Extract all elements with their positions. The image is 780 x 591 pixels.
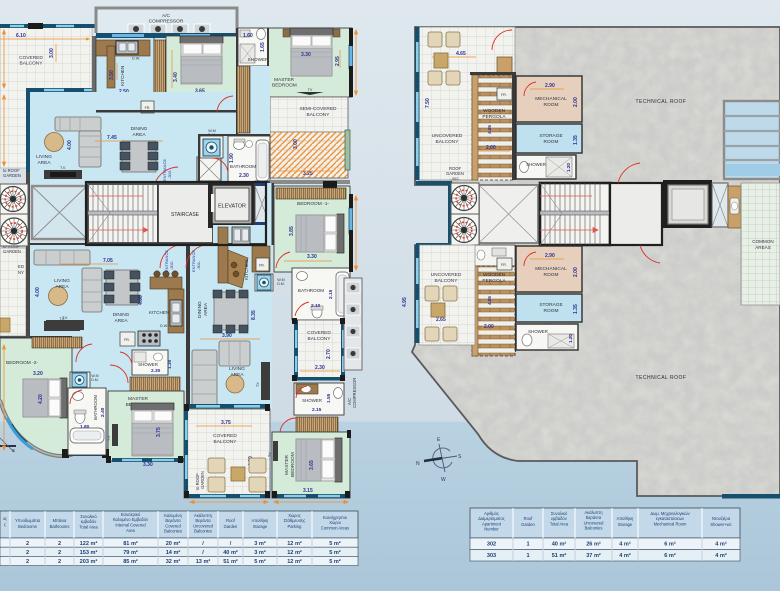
svg-text:TX: TX [256, 382, 260, 387]
svg-text:KITCHEN: KITCHEN [244, 260, 249, 280]
svg-text:1.30: 1.30 [167, 359, 173, 369]
svg-text:5 m²: 5 m² [329, 558, 341, 565]
svg-text:3.15: 3.15 [303, 488, 313, 494]
svg-text:37 m²: 37 m² [586, 552, 601, 559]
svg-text:AREA: AREA [132, 132, 146, 138]
svg-text:COMPRESSOR: COMPRESSOR [352, 378, 357, 408]
svg-text:4 m²: 4 m² [619, 552, 631, 559]
svg-text:S: S [12, 448, 15, 453]
svg-text:12 m²: 12 m² [287, 540, 302, 547]
svg-text:SHOWER: SHOWER [528, 329, 548, 334]
svg-text:1.20: 1.20 [566, 163, 571, 172]
svg-text:3.30: 3.30 [307, 254, 317, 260]
svg-text:εγκαταστάσεων: εγκαταστάσεων [656, 516, 684, 521]
svg-text:AREA: AREA [37, 160, 51, 166]
svg-text:-301-: -301- [196, 260, 201, 270]
svg-text:2: 2 [58, 559, 61, 565]
svg-text:BEDROOM: BEDROOM [290, 452, 296, 477]
svg-text:2.40: 2.40 [100, 407, 106, 417]
svg-text:BEDROOM: BEDROOM [272, 83, 297, 89]
svg-text:AREA: AREA [55, 284, 69, 290]
svg-text:2: 2 [58, 550, 61, 556]
svg-text:3.00: 3.00 [49, 48, 55, 58]
svg-text:AREAS: AREAS [755, 245, 771, 250]
svg-text:4 m²: 4 m² [715, 552, 727, 559]
svg-text:T.V.: T.V. [59, 317, 65, 321]
svg-text:3.20: 3.20 [33, 371, 43, 377]
svg-text:2.15: 2.15 [328, 289, 334, 299]
svg-text:Bathrooms: Bathrooms [50, 524, 70, 529]
svg-text:Ντουζιέρα: Ντουζιέρα [712, 516, 731, 521]
svg-text:SHOWER: SHOWER [302, 398, 322, 403]
svg-text:302: 302 [487, 542, 496, 548]
svg-text:2.30: 2.30 [315, 365, 325, 371]
svg-text:303: 303 [487, 553, 496, 559]
svg-text:Total Area: Total Area [79, 525, 98, 530]
svg-text:Area: Area [126, 528, 135, 533]
svg-text:2: 2 [26, 559, 29, 565]
svg-text:Roof: Roof [524, 516, 534, 521]
svg-text:Garden: Garden [521, 522, 535, 527]
svg-text:2.00: 2.00 [573, 267, 579, 277]
svg-text:3.75: 3.75 [221, 420, 231, 426]
svg-text:Balconies: Balconies [585, 526, 603, 531]
svg-text:14 m²: 14 m² [166, 549, 181, 556]
svg-text:2.15: 2.15 [312, 407, 322, 413]
svg-text:1: 1 [526, 542, 529, 548]
svg-text:1.55: 1.55 [326, 393, 332, 403]
svg-text:4.05: 4.05 [487, 125, 492, 134]
svg-text:SHOWER: SHOWER [526, 162, 546, 167]
svg-text:BEDROOM -1-: BEDROOM -1- [297, 201, 329, 207]
svg-text:Balconies: Balconies [164, 529, 182, 534]
svg-text:PERGOLA: PERGOLA [482, 114, 506, 120]
svg-text:ED: ED [18, 264, 24, 269]
svg-text:2.30: 2.30 [151, 368, 161, 374]
svg-text:2: 2 [26, 550, 29, 556]
svg-text:1.65: 1.65 [260, 42, 266, 52]
svg-text:Mechanical Room: Mechanical Room [654, 522, 687, 527]
svg-text:1.35: 1.35 [573, 135, 579, 145]
svg-text:Shower+wc: Shower+wc [710, 522, 731, 527]
svg-text:BEDROOM -2-: BEDROOM -2- [6, 360, 38, 366]
svg-text:1.20: 1.20 [568, 334, 573, 343]
svg-text:2.00: 2.00 [486, 145, 496, 151]
svg-text:KITCHEN: KITCHEN [149, 310, 169, 315]
svg-text:SHOWER: SHOWER [138, 362, 158, 367]
svg-text:153 m²: 153 m² [80, 549, 98, 556]
svg-text:W: W [441, 477, 446, 483]
svg-text:1.90: 1.90 [229, 153, 235, 163]
svg-text:T.V.: T.V. [60, 166, 66, 170]
svg-text:Internal Covered: Internal Covered [115, 523, 146, 528]
svg-text:4 m²: 4 m² [715, 541, 727, 548]
svg-text:Αποθήκη: Αποθήκη [617, 516, 634, 521]
svg-text:4.00: 4.00 [67, 140, 73, 150]
svg-text:STORAGE: STORAGE [539, 302, 562, 308]
svg-text:26 m²: 26 m² [586, 541, 601, 548]
svg-text:TV: TV [308, 88, 313, 92]
svg-text:3.50: 3.50 [109, 70, 115, 80]
svg-text:ος: ος [3, 516, 7, 521]
svg-text:KITCHEN: KITCHEN [120, 66, 125, 86]
svg-text:εμβαδόν: εμβαδόν [551, 516, 567, 521]
svg-text:STAIRCASE: STAIRCASE [171, 212, 200, 218]
svg-text:3.90: 3.90 [222, 333, 232, 339]
svg-text:NY: NY [18, 270, 24, 275]
svg-text:-302-: -302- [169, 260, 174, 270]
svg-text:DINING: DINING [197, 301, 203, 318]
svg-text:MASTER: MASTER [274, 77, 295, 83]
svg-text:2.10: 2.10 [311, 303, 321, 309]
svg-text:1.60: 1.60 [243, 33, 253, 39]
svg-text:Common Areas: Common Areas [321, 526, 349, 531]
svg-text:40 m²: 40 m² [223, 549, 238, 556]
svg-text:3.75: 3.75 [156, 427, 162, 437]
svg-text:Roof: Roof [226, 518, 236, 523]
svg-text:2.30: 2.30 [239, 173, 249, 179]
svg-text:ROOM: ROOM [544, 272, 559, 278]
svg-text:32 m²: 32 m² [166, 558, 181, 565]
svg-text:40 m²: 40 m² [552, 541, 567, 548]
svg-text:COVERED: COVERED [307, 330, 331, 336]
svg-text:PERGOLA: PERGOLA [482, 278, 506, 284]
svg-text:3.25: 3.25 [303, 171, 313, 177]
svg-text:3.30: 3.30 [143, 462, 153, 468]
svg-text:3.30: 3.30 [301, 52, 311, 58]
svg-text:SEMI-COVERED: SEMI-COVERED [299, 106, 337, 112]
svg-text:MECHANICAL: MECHANICAL [535, 96, 567, 102]
svg-text:1: 1 [526, 553, 529, 559]
svg-text:FR.: FR. [124, 338, 130, 342]
svg-text:TECHNICAL ROOF: TECHNICAL ROOF [636, 99, 687, 105]
svg-text:Parking: Parking [288, 524, 303, 529]
svg-text:Μπάνια: Μπάνια [53, 518, 67, 523]
svg-text:4.05: 4.05 [487, 296, 492, 305]
svg-text:Storage: Storage [253, 524, 268, 529]
svg-text:AREA: AREA [230, 372, 244, 378]
svg-text:4.65: 4.65 [456, 51, 466, 57]
svg-text:GARDEN: GARDEN [3, 173, 21, 178]
svg-text:4.20: 4.20 [38, 394, 44, 404]
svg-text:BATHROOM: BATHROOM [298, 288, 324, 293]
svg-text:FR.: FR. [259, 264, 265, 268]
svg-text:MASTER: MASTER [128, 396, 149, 402]
svg-text:Garden: Garden [224, 524, 238, 529]
svg-text:ROOM: ROOM [544, 308, 559, 314]
svg-text:3 m²: 3 m² [254, 540, 266, 547]
svg-text:FR.: FR. [501, 93, 507, 97]
svg-text:Βεράντα: Βεράντα [195, 518, 211, 523]
svg-text:BALCONY: BALCONY [435, 278, 459, 284]
svg-text:5 m²: 5 m² [329, 549, 341, 556]
svg-text:UNCOVERED: UNCOVERED [432, 133, 463, 139]
svg-text:STORAGE: STORAGE [539, 133, 562, 139]
svg-text:MASTER: MASTER [284, 454, 290, 475]
svg-text:COMMON: COMMON [752, 239, 773, 244]
svg-text:51 m²: 51 m² [552, 552, 567, 559]
svg-text:-302-: -302- [450, 176, 460, 181]
svg-text:203 m²: 203 m² [80, 558, 98, 565]
svg-text:4.00: 4.00 [35, 287, 41, 297]
svg-text:81 m²: 81 m² [123, 540, 138, 547]
svg-text:Total Area: Total Area [550, 522, 569, 527]
svg-text:GARDEN: GARDEN [3, 249, 21, 254]
svg-text:LIVING: LIVING [36, 154, 52, 160]
svg-text:ROOM: ROOM [544, 139, 559, 145]
svg-text:-303-: -303- [167, 169, 172, 179]
svg-text:DINING: DINING [131, 126, 148, 132]
svg-text:DINING: DINING [113, 312, 130, 318]
svg-text:ς: ς [4, 522, 6, 527]
svg-text:UNCOVERED: UNCOVERED [431, 272, 462, 278]
svg-text:6 m²: 6 m² [664, 541, 676, 548]
svg-text:2: 2 [58, 541, 61, 547]
svg-text:D.M.: D.M. [91, 378, 99, 382]
svg-text:3.40: 3.40 [173, 72, 179, 82]
svg-text:4.95: 4.95 [402, 297, 408, 307]
svg-text:51 m²: 51 m² [223, 558, 238, 565]
svg-text:8.35: 8.35 [251, 310, 257, 320]
svg-text:AREA: AREA [203, 302, 209, 316]
svg-text:LIVING: LIVING [54, 278, 70, 284]
svg-text:N: N [416, 461, 420, 467]
svg-text:SHOWER: SHOWER [248, 57, 269, 62]
svg-text:4 m²: 4 m² [619, 541, 631, 548]
svg-text:2.90: 2.90 [545, 253, 555, 259]
svg-text:Βεράντα: Βεράντα [586, 515, 602, 520]
svg-text:4.60: 4.60 [138, 295, 144, 305]
svg-text:FR.: FR. [145, 106, 151, 110]
svg-text:Στάθμευσης: Στάθμευσης [284, 518, 306, 523]
svg-text:Διαμερίσματος: Διαμερίσματος [478, 516, 505, 521]
svg-text:1.80: 1.80 [80, 424, 90, 430]
svg-text:85 m²: 85 m² [123, 558, 138, 565]
svg-text:122 m²: 122 m² [80, 540, 98, 547]
svg-text:6 m²: 6 m² [664, 552, 676, 559]
svg-text:A/C: A/C [162, 13, 171, 19]
svg-text:T.V.: T.V. [107, 435, 111, 441]
svg-text:Βεράντα: Βεράντα [165, 518, 181, 523]
svg-text:ELEVATOR: ELEVATOR [218, 204, 246, 210]
svg-text:Storage: Storage [618, 522, 633, 527]
svg-text:ROOM: ROOM [544, 102, 559, 108]
svg-text:S: S [458, 454, 462, 460]
svg-text:2.70: 2.70 [326, 349, 332, 359]
svg-text:BALCONY: BALCONY [20, 61, 44, 67]
svg-text:TV: TV [268, 452, 272, 457]
svg-text:7.50: 7.50 [425, 98, 431, 108]
svg-text:5 m²: 5 m² [329, 540, 341, 547]
svg-text:D.W.: D.W. [132, 57, 140, 61]
svg-text:2.90: 2.90 [545, 83, 555, 89]
svg-text:3 m²: 3 m² [254, 549, 266, 556]
svg-text:13 m²: 13 m² [196, 558, 211, 565]
svg-text:5 m²: 5 m² [254, 558, 266, 565]
svg-text:BALCONY: BALCONY [308, 336, 332, 342]
svg-text:BALCONY: BALCONY [214, 439, 238, 445]
svg-text:D.W.: D.W. [160, 324, 168, 328]
svg-text:COVERED: COVERED [19, 55, 43, 61]
svg-text:2.95: 2.95 [335, 56, 341, 66]
svg-text:Number: Number [484, 527, 499, 532]
svg-text:GARDEN: GARDEN [200, 471, 205, 489]
svg-text:2.00: 2.00 [573, 97, 579, 107]
svg-text:79 m²: 79 m² [123, 549, 138, 556]
svg-text:D.M.: D.M. [277, 282, 285, 286]
svg-text:3.65: 3.65 [309, 460, 315, 470]
svg-text:2: 2 [26, 541, 29, 547]
svg-text:εμβαδόν: εμβαδόν [81, 519, 97, 524]
svg-text:BATHROOM: BATHROOM [93, 395, 98, 420]
svg-text:AREA: AREA [114, 318, 128, 324]
svg-text:3.85: 3.85 [289, 226, 295, 236]
svg-text:1.35: 1.35 [573, 304, 579, 314]
svg-text:12 m²: 12 m² [287, 549, 302, 556]
svg-text:BALCONY: BALCONY [436, 139, 460, 145]
svg-text:Αποθήκη: Αποθήκη [252, 518, 269, 523]
svg-text:WOODEN: WOODEN [483, 272, 506, 278]
svg-text:FR.: FR. [501, 263, 507, 267]
svg-text:20 m²: 20 m² [166, 540, 181, 547]
svg-text:7.45: 7.45 [107, 135, 117, 141]
svg-text:Χώροι: Χώροι [329, 520, 341, 525]
svg-text:MECHANICAL: MECHANICAL [535, 266, 567, 272]
svg-text:BATHROOM: BATHROOM [230, 164, 256, 169]
svg-text:BALCONY: BALCONY [307, 112, 331, 118]
svg-text:7.05: 7.05 [103, 258, 113, 264]
svg-text:TECHNICAL ROOF: TECHNICAL ROOF [636, 375, 687, 381]
svg-text:Balconies: Balconies [194, 529, 212, 534]
svg-text:WOODEN: WOODEN [483, 108, 506, 114]
svg-text:E: E [437, 437, 441, 443]
svg-text:2.00: 2.00 [484, 324, 494, 330]
svg-text:Καλυμένο Εμβαδόν: Καλυμένο Εμβαδόν [113, 517, 148, 522]
svg-text:Υπνοδωμάτια: Υπνοδωμάτια [15, 518, 41, 523]
svg-text:2.65: 2.65 [436, 317, 446, 323]
svg-text:LIVING: LIVING [229, 366, 245, 372]
svg-text:12 m²: 12 m² [287, 558, 302, 565]
svg-text:COVERED: COVERED [213, 433, 237, 439]
svg-text:Bedrooms: Bedrooms [18, 524, 37, 529]
svg-text:3.00: 3.00 [293, 139, 299, 149]
svg-text:6.10: 6.10 [16, 33, 26, 39]
